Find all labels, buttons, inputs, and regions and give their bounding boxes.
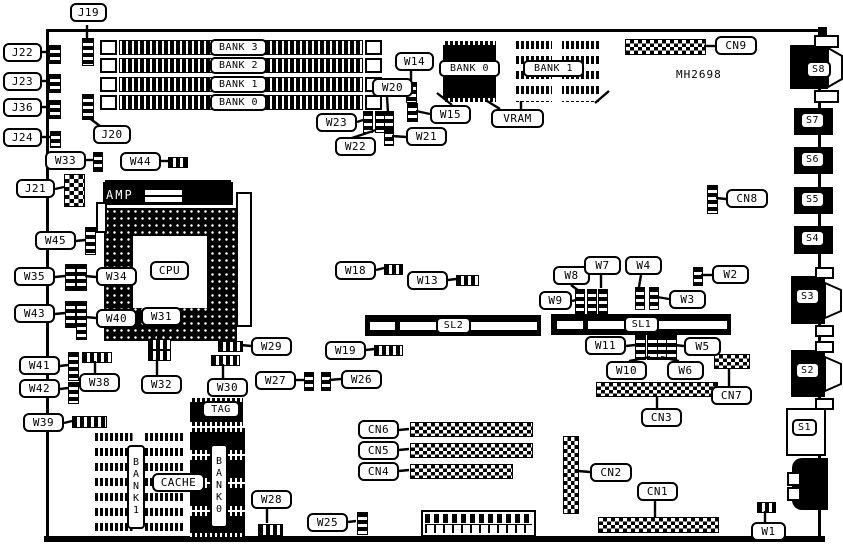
- connector-cn3: [596, 382, 718, 397]
- label-cn5: CN5: [358, 441, 399, 460]
- motherboard-diagram: AMP: [0, 0, 843, 548]
- jumper-w34: [76, 264, 87, 291]
- label-cache-bank1: BANK1: [127, 445, 145, 529]
- label-sl2: SL2: [436, 317, 471, 334]
- label-w31: W31: [141, 307, 182, 326]
- label-w33: W33: [45, 151, 86, 170]
- label-simm-bank0: BANK 0: [210, 94, 267, 111]
- label-cpu: CPU: [150, 261, 189, 280]
- label-vram-bank0: BANK 0: [439, 60, 500, 77]
- label-cache: CACHE: [152, 473, 205, 492]
- label-w45: W45: [35, 231, 76, 250]
- label-j21: J21: [16, 179, 55, 198]
- power-connector-pins-bottom: [425, 524, 532, 533]
- label-cn2: CN2: [590, 463, 632, 482]
- jumper-j23: [49, 74, 61, 93]
- jumper-j19: [82, 38, 94, 66]
- label-w15: W15: [430, 105, 471, 124]
- label-w5: W5: [684, 337, 721, 356]
- port-s8-tab-top: [814, 35, 839, 48]
- label-w23: W23: [316, 113, 357, 132]
- jumper-w39: [72, 416, 107, 428]
- label-w42: W42: [19, 379, 60, 398]
- jumper-j24: [50, 131, 61, 148]
- amp-regulator: AMP: [103, 182, 233, 205]
- connector-cn1: [598, 517, 719, 533]
- jumper-w32: [148, 350, 171, 361]
- label-s5: S5: [800, 191, 825, 208]
- jumper-w35: [65, 264, 76, 291]
- simm-latch: [365, 58, 382, 73]
- label-w32: W32: [141, 375, 182, 394]
- label-j20: J20: [93, 125, 131, 144]
- amp-window-2: [145, 197, 182, 202]
- label-vram-bank1: BANK 1: [523, 60, 584, 77]
- jumper-w27: [304, 372, 314, 391]
- label-cn9: CN9: [715, 36, 757, 55]
- simm-latch: [100, 95, 117, 110]
- label-w7: W7: [584, 256, 621, 275]
- label-j24: J24: [3, 128, 42, 147]
- label-simm-bank2: BANK 2: [210, 57, 267, 74]
- label-w11: W11: [585, 336, 626, 355]
- jumper-w11: [635, 335, 646, 360]
- label-simm-bank3: BANK 3: [210, 39, 267, 56]
- jumper-w15: [407, 103, 418, 122]
- port-s2-tab-top: [815, 341, 834, 353]
- jumper-w18: [384, 264, 403, 275]
- label-tag: TAG: [202, 401, 240, 418]
- label-cn6: CN6: [358, 420, 399, 439]
- label-w38: W38: [79, 373, 120, 392]
- label-j22: J22: [3, 43, 42, 62]
- board-edge-top: [46, 29, 822, 32]
- jumper-w23: [363, 111, 373, 133]
- jumper-w42: [68, 382, 79, 404]
- cpu-retention-right: [236, 192, 252, 327]
- label-s3: S3: [795, 288, 820, 305]
- port-s8-tab-bottom: [814, 90, 839, 103]
- label-w44: W44: [120, 152, 161, 171]
- connector-cn4: [410, 464, 513, 479]
- simm-latch: [100, 77, 117, 92]
- label-j19: J19: [70, 3, 107, 22]
- jumper-w38: [82, 352, 112, 363]
- label-w25: W25: [307, 513, 348, 532]
- label-w30: W30: [207, 378, 248, 397]
- jumper-w25: [357, 512, 368, 535]
- jumper-cn8: [707, 185, 718, 214]
- label-s1: S1: [792, 419, 817, 436]
- label-s7: S7: [800, 112, 825, 129]
- label-w43: W43: [14, 304, 55, 323]
- label-vram: VRAM: [491, 109, 544, 128]
- jumper-w43: [65, 301, 76, 328]
- label-w1: W1: [751, 522, 786, 541]
- label-w34: W34: [96, 267, 137, 286]
- jumper-w29: [218, 341, 243, 352]
- jumper-w33: [93, 152, 103, 172]
- jumper-w31: [148, 339, 171, 350]
- jumper-w3: [649, 287, 659, 310]
- jumper-w26: [321, 372, 331, 391]
- jumper-j20: [82, 94, 94, 120]
- connector-cn2: [563, 436, 579, 514]
- label-w6: W6: [667, 361, 704, 380]
- label-w4: W4: [625, 256, 662, 275]
- label-cache-bank0: BANK0: [210, 444, 228, 528]
- connector-cn9: [625, 39, 706, 55]
- simm-latch: [100, 40, 117, 55]
- jumper-w5: [666, 335, 677, 360]
- amp-label: AMP: [106, 188, 134, 202]
- jumper-j36: [49, 100, 61, 119]
- amp-window-1: [145, 190, 182, 195]
- label-w39: W39: [23, 413, 64, 432]
- jumper-w45: [85, 227, 96, 255]
- simm-latch: [365, 95, 382, 110]
- label-w2: W2: [712, 265, 749, 284]
- label-w27: W27: [255, 371, 296, 390]
- jumper-w9: [575, 289, 585, 314]
- connector-j21: [64, 174, 85, 207]
- label-w13: W13: [407, 271, 448, 290]
- cpu-retention-left: [96, 202, 107, 233]
- label-w40: W40: [96, 309, 137, 328]
- label-w9: W9: [539, 291, 572, 310]
- label-w10: W10: [606, 361, 647, 380]
- jumper-w1: [757, 502, 776, 513]
- jumper-w28: [258, 524, 283, 536]
- label-sl1: SL1: [624, 316, 659, 333]
- jumper-w21: [384, 129, 394, 146]
- jumper-w4: [635, 287, 645, 310]
- jumper-w8: [587, 289, 597, 314]
- label-simm-bank1: BANK 1: [210, 76, 267, 93]
- port-s3-tab-top: [815, 267, 834, 279]
- jumper-w13: [456, 275, 479, 286]
- label-w41: W41: [19, 356, 60, 375]
- label-j23: J23: [3, 72, 42, 91]
- simm-latch: [100, 58, 117, 73]
- label-w26: W26: [341, 370, 382, 389]
- label-w29: W29: [251, 337, 292, 356]
- connector-cn6: [410, 422, 533, 437]
- jumper-w20: [384, 111, 394, 130]
- power-connector: [421, 510, 536, 537]
- label-w3: W3: [669, 290, 706, 309]
- power-connector-pins-top: [425, 514, 532, 523]
- jumper-w7: [598, 289, 608, 314]
- din-pin-1: [787, 472, 801, 486]
- label-j36: J36: [3, 98, 42, 117]
- label-s8: S8: [806, 61, 831, 78]
- label-w14: W14: [395, 52, 434, 71]
- jumper-w2: [693, 267, 703, 286]
- label-cn8: CN8: [726, 189, 768, 208]
- connector-cn7: [714, 354, 750, 369]
- din-pin-2: [787, 487, 801, 501]
- label-w21: W21: [406, 127, 447, 146]
- label-w19: W19: [325, 341, 366, 360]
- jumper-w41: [68, 352, 79, 381]
- label-cn7: CN7: [711, 386, 752, 405]
- port-s3-tab-bottom: [815, 325, 834, 337]
- label-w18: W18: [335, 261, 376, 280]
- label-s6: S6: [800, 151, 825, 168]
- simm-latch: [365, 40, 382, 55]
- jumper-w40: [76, 301, 87, 340]
- jumper-w30: [211, 355, 240, 366]
- label-w35: W35: [14, 267, 55, 286]
- label-cn4: CN4: [358, 462, 399, 481]
- label-w22: W22: [335, 137, 376, 156]
- label-cn3: CN3: [641, 408, 682, 427]
- jumper-j22: [49, 45, 61, 64]
- label-w28: W28: [251, 490, 292, 509]
- label-s4: S4: [800, 230, 825, 247]
- jumper-w19: [374, 345, 403, 356]
- connector-cn5: [410, 443, 533, 458]
- board-model-text: MH2698: [676, 68, 722, 81]
- label-cn1: CN1: [637, 482, 678, 501]
- jumper-w44: [168, 157, 188, 168]
- label-w20: W20: [372, 78, 413, 97]
- label-s2: S2: [795, 362, 820, 379]
